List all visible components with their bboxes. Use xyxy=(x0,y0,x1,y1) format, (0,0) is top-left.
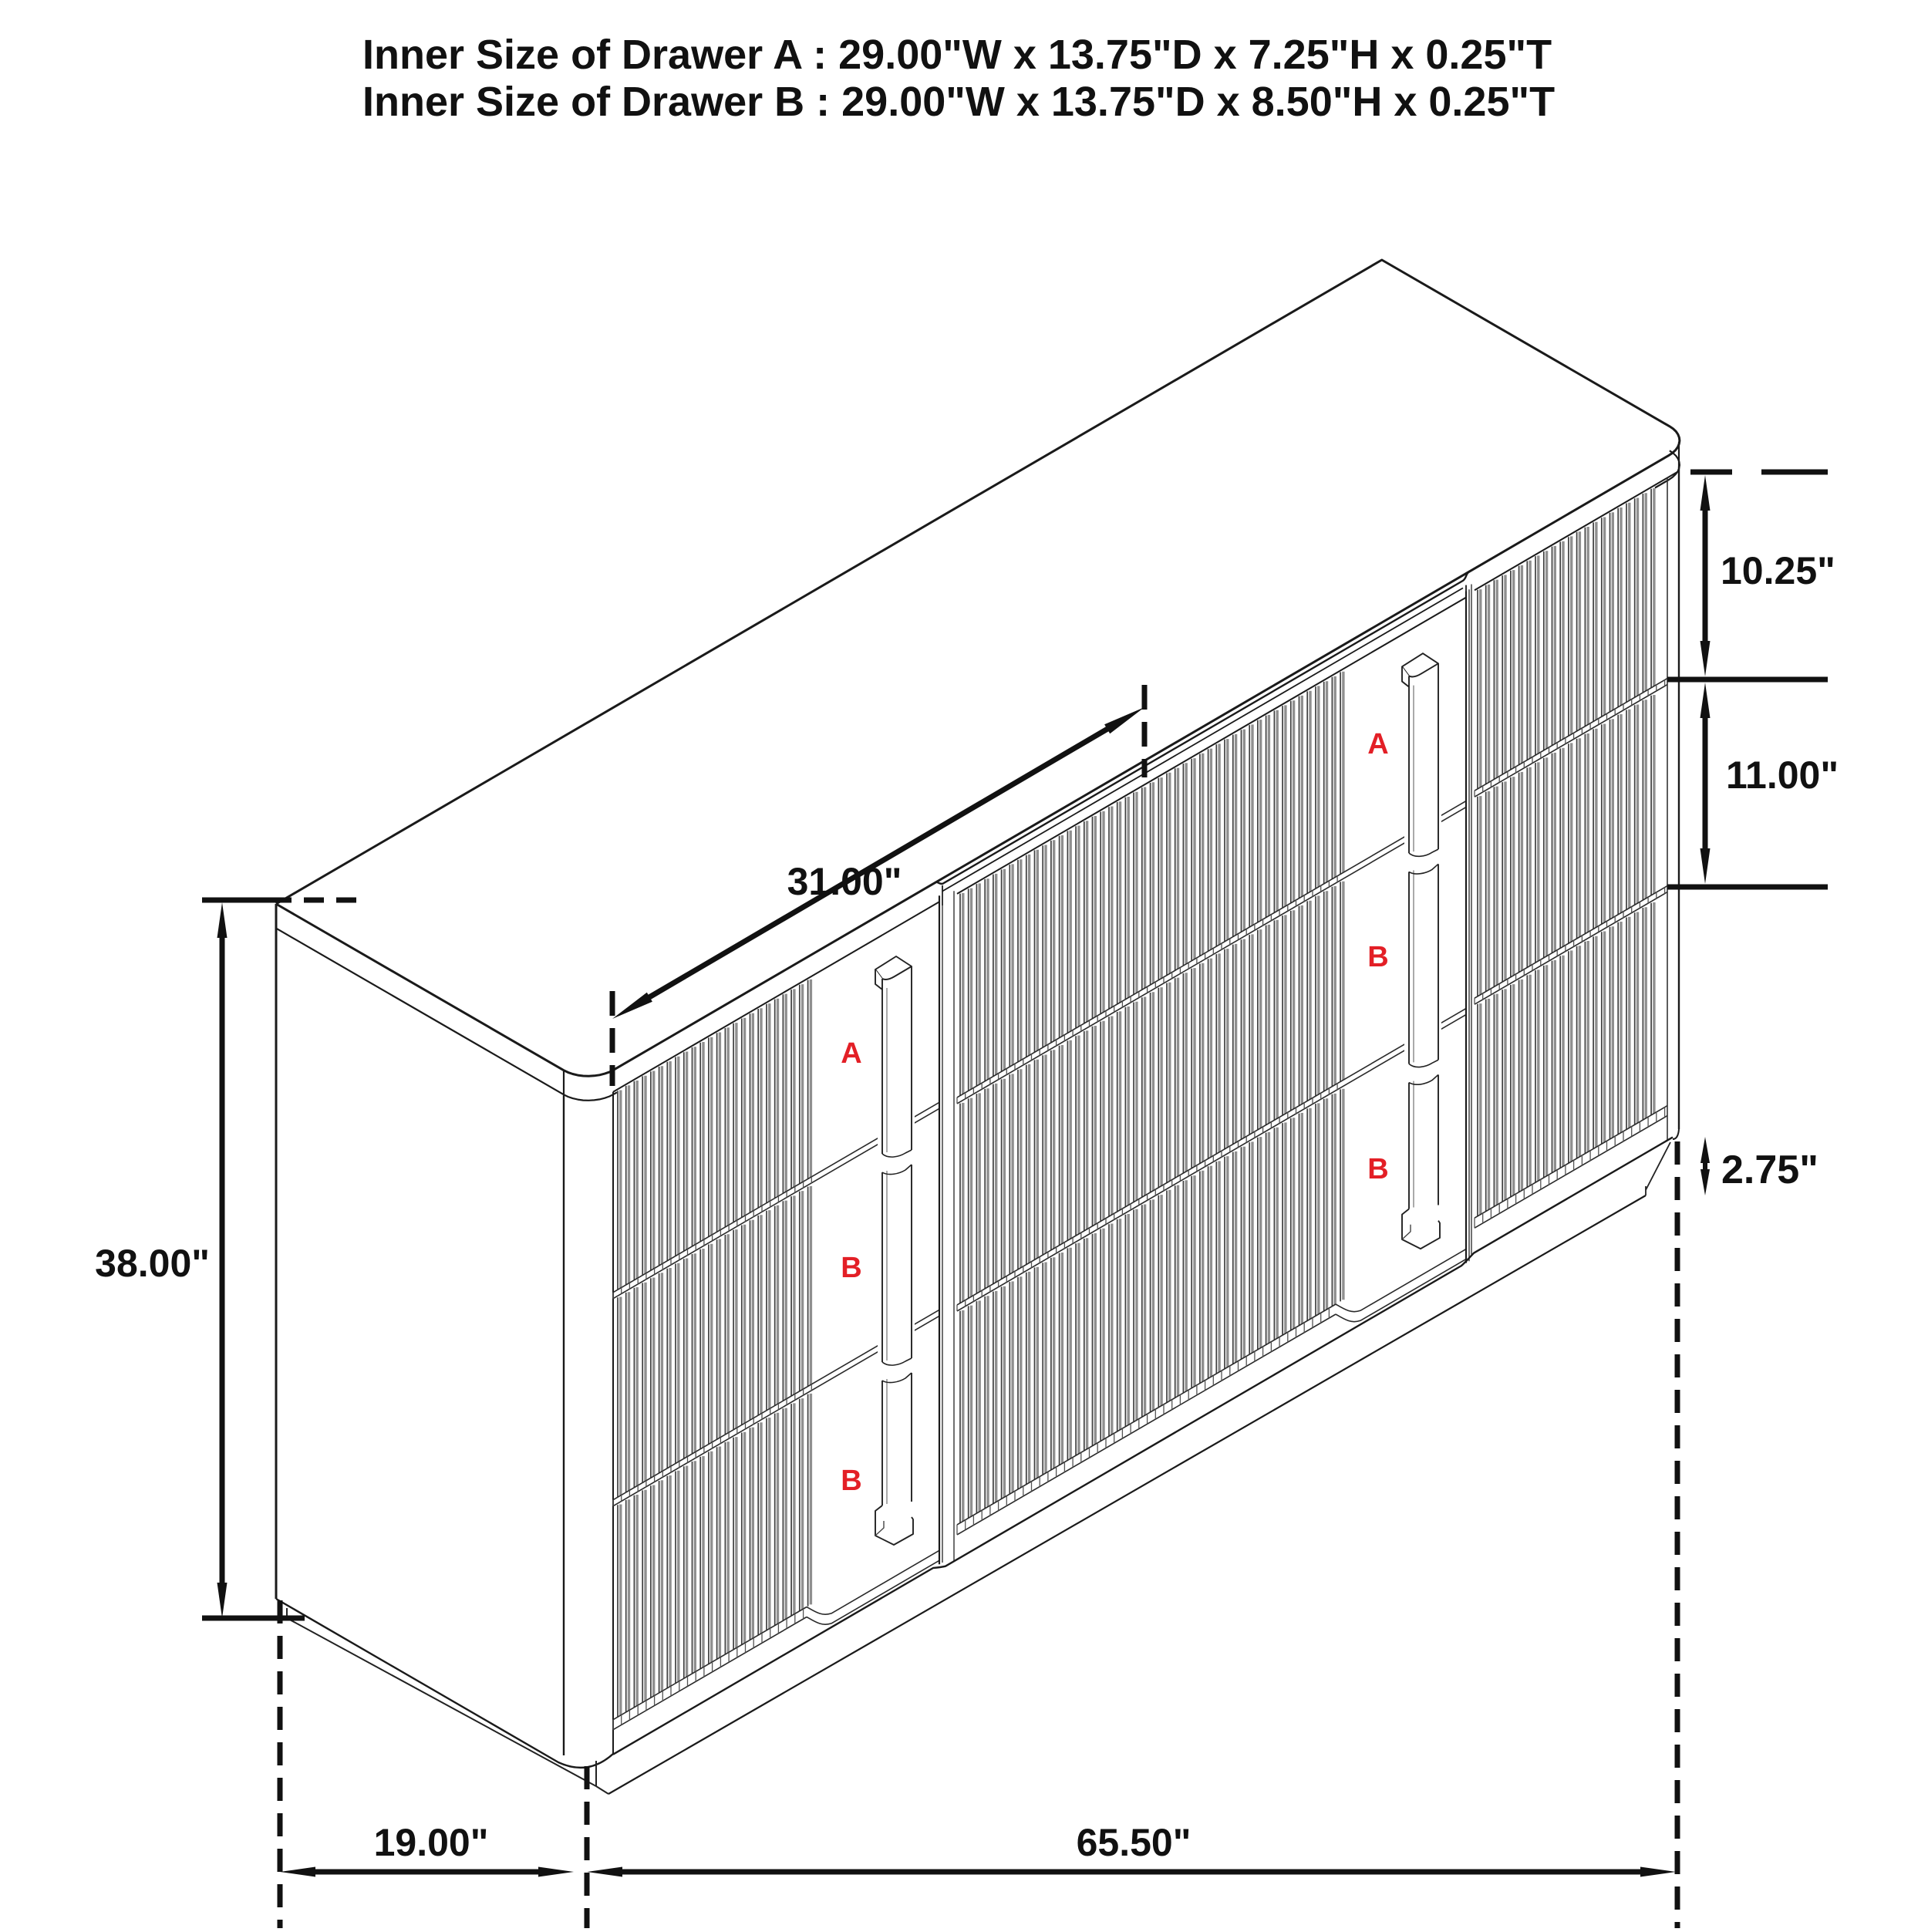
svg-text:A: A xyxy=(841,1037,861,1070)
svg-text:B: B xyxy=(1367,941,1388,973)
svg-text:2.75": 2.75" xyxy=(1721,1148,1818,1192)
svg-text:11.00": 11.00" xyxy=(1726,754,1839,797)
svg-text:Inner Size of Drawer A : 29.00: Inner Size of Drawer A : 29.00"W x 13.75… xyxy=(362,32,1552,78)
svg-text:B: B xyxy=(841,1252,861,1284)
svg-text:31.00": 31.00" xyxy=(787,860,902,903)
svg-text:10.25": 10.25" xyxy=(1721,549,1835,592)
svg-text:38.00": 38.00" xyxy=(95,1242,210,1285)
svg-text:Inner Size of Drawer B : 29.00: Inner Size of Drawer B : 29.00"W x 13.75… xyxy=(362,79,1555,125)
svg-text:B: B xyxy=(1367,1153,1388,1185)
svg-text:B: B xyxy=(841,1465,861,1497)
svg-text:A: A xyxy=(1367,728,1388,760)
svg-text:65.50": 65.50" xyxy=(1077,1821,1192,1864)
svg-text:19.00": 19.00" xyxy=(374,1821,489,1864)
